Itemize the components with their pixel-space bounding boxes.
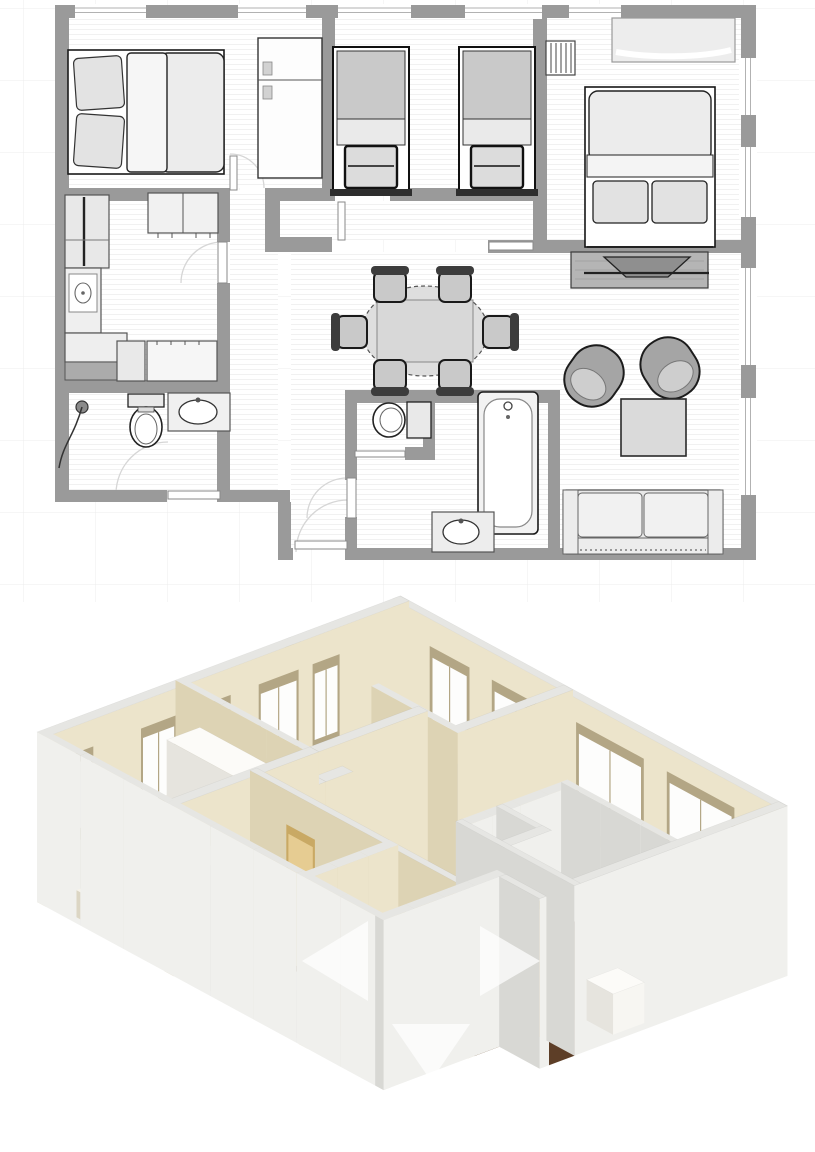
wall: [741, 5, 756, 58]
window: [739, 268, 757, 365]
coffee-table: [621, 399, 686, 456]
kitchen-unit-right: [117, 341, 217, 381]
bed-double-master: [585, 87, 715, 247]
wall: [217, 190, 230, 242]
window: [739, 58, 757, 115]
door-leaf: [347, 478, 356, 518]
vanity-bath1: [168, 393, 230, 431]
kitchen-upper-cabinet: [148, 193, 218, 238]
wall-south-left: [375, 904, 414, 1090]
wall-west: [254, 847, 305, 1043]
wall: [222, 490, 290, 502]
wall: [55, 490, 167, 502]
window: [739, 147, 757, 217]
floor-plan-2d: [0, 0, 815, 576]
wall: [741, 365, 756, 398]
bed-single-a: [330, 47, 412, 196]
sink-bath2-3d: [587, 968, 645, 1035]
wall: [265, 201, 280, 252]
window: [569, 4, 621, 19]
wardrobe-bedroom1: [258, 38, 322, 178]
kitchen-tall-unit: [65, 195, 109, 268]
bed-single-b: [456, 47, 538, 196]
door-leaf: [295, 541, 347, 549]
door-leaf: [218, 242, 227, 283]
window: [465, 4, 542, 19]
wall: [548, 390, 560, 560]
wall: [280, 237, 332, 252]
kitchen-counter: [65, 268, 101, 333]
floor-plan-3d-dollhouse: [0, 576, 815, 1152]
wall: [621, 5, 755, 18]
floorplanner-screenshot: [0, 0, 815, 1152]
wall: [55, 380, 230, 393]
wardrobe-master: [612, 18, 735, 62]
door-leaf: [338, 202, 345, 240]
door-leaf: [355, 451, 405, 457]
wall: [345, 403, 357, 480]
toilet-bath1: [128, 394, 164, 447]
wall: [146, 5, 238, 18]
background-grid: [0, 576, 815, 602]
wall: [345, 517, 357, 560]
bed-double-bedroom1: [68, 50, 224, 174]
window: [75, 4, 146, 19]
room-floor: [280, 201, 533, 240]
window: [739, 398, 757, 495]
door-leaf: [230, 156, 237, 190]
window: [338, 4, 411, 19]
wall: [411, 5, 465, 18]
wall-west: [167, 800, 218, 996]
radiator: [546, 41, 575, 75]
sink-bath2: [432, 512, 494, 552]
door-leaf: [168, 491, 220, 499]
sofa: [563, 490, 723, 554]
wall-west: [124, 776, 175, 972]
wall-west: [80, 753, 131, 949]
window: [238, 4, 306, 19]
door-leaf: [489, 242, 533, 250]
wall: [741, 115, 756, 147]
tv-sideboard: [571, 252, 709, 288]
wall-west: [210, 823, 261, 1019]
wall: [278, 502, 291, 560]
